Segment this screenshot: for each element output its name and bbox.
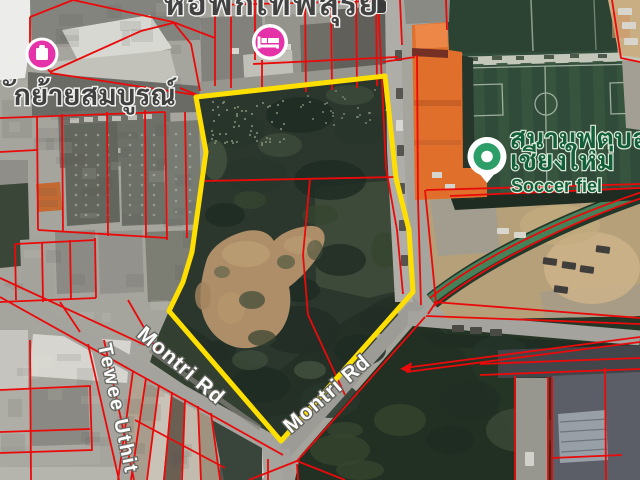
svg-text:Soccer fiel: Soccer fiel: [511, 176, 602, 196]
